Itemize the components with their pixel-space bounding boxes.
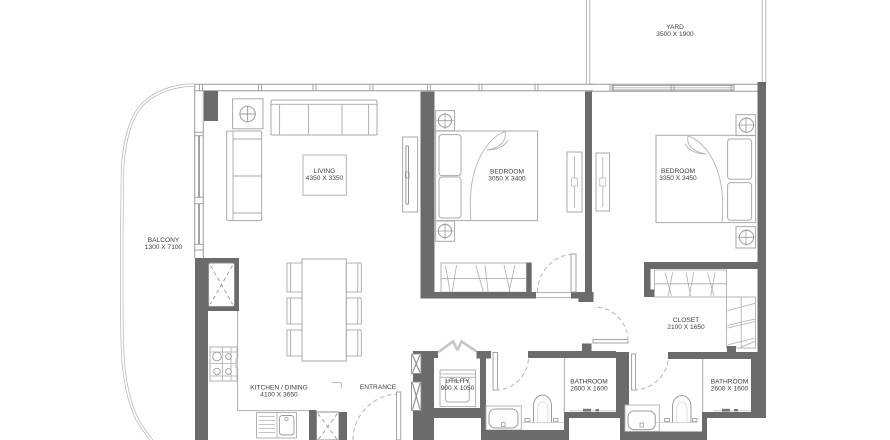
svg-text:4100 X 3650: 4100 X 3650: [260, 392, 298, 399]
svg-text:UTILITY: UTILITY: [445, 378, 470, 385]
svg-text:CLOSET: CLOSET: [673, 317, 699, 324]
svg-text:900 X 1050: 900 X 1050: [441, 385, 475, 392]
svg-text:LIVING: LIVING: [314, 168, 336, 175]
svg-text:3050 X 3400: 3050 X 3400: [488, 176, 526, 183]
svg-text:BATHROOM: BATHROOM: [570, 379, 608, 386]
svg-text:ENTRANCE: ENTRANCE: [360, 384, 397, 391]
svg-text:KITCHEN / DINING: KITCHEN / DINING: [250, 385, 308, 392]
svg-text:3500 X 1900: 3500 X 1900: [656, 31, 694, 38]
svg-text:BALCONY: BALCONY: [148, 237, 180, 244]
svg-text:2100 X 1650: 2100 X 1650: [667, 324, 705, 331]
svg-text:BEDROOM: BEDROOM: [490, 169, 524, 176]
svg-text:3350 X 3450: 3350 X 3450: [659, 175, 697, 182]
svg-text:2600 X 1600: 2600 X 1600: [570, 386, 608, 393]
svg-text:BEDROOM: BEDROOM: [661, 168, 695, 175]
svg-text:1300 X 7100: 1300 X 7100: [145, 244, 183, 251]
svg-text:2600 X 1600: 2600 X 1600: [711, 386, 749, 393]
svg-text:4350 X 3350: 4350 X 3350: [306, 175, 344, 182]
svg-text:BATHROOM: BATHROOM: [711, 379, 749, 386]
svg-text:YARD: YARD: [666, 24, 684, 31]
